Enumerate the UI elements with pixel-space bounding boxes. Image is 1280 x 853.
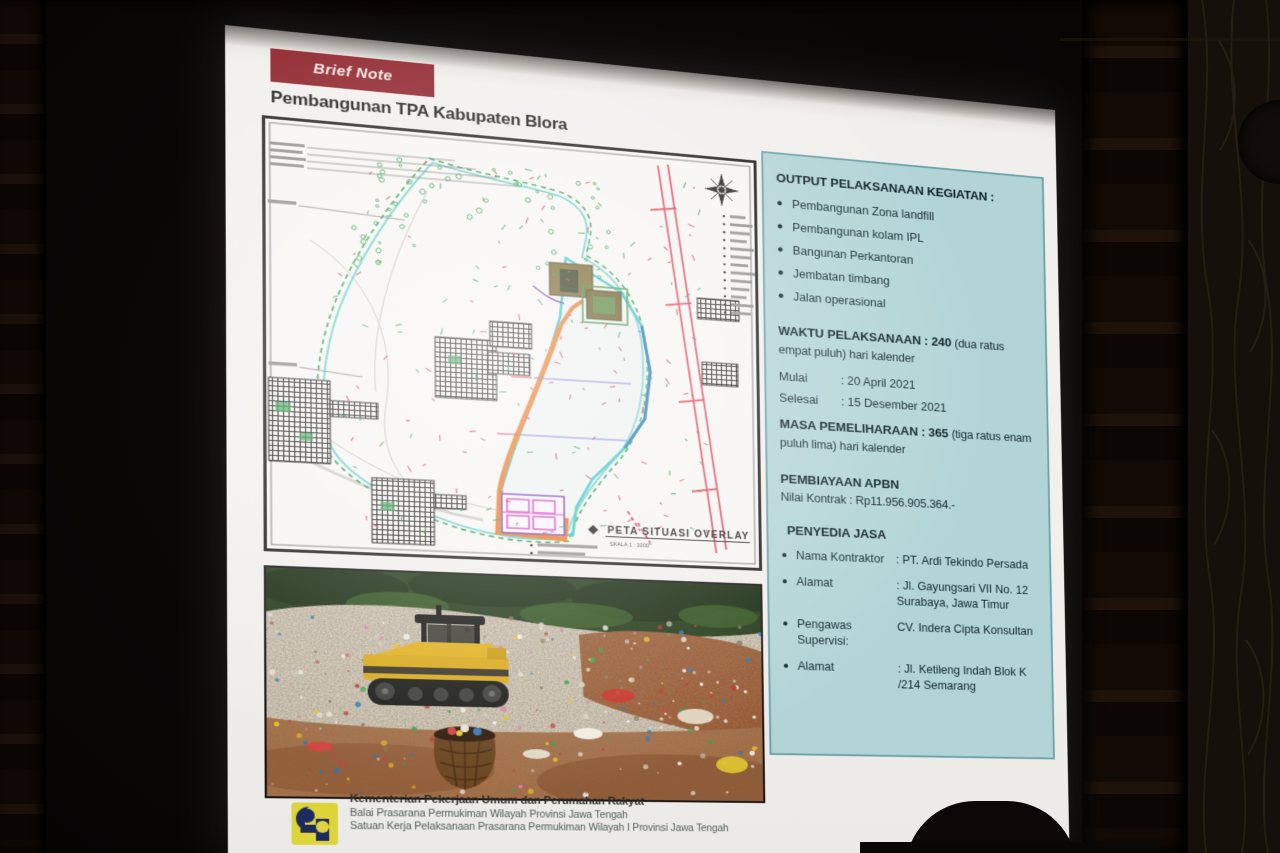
bullet-icon: ● <box>777 238 793 262</box>
footer-org-line2: Balai Prasarana Permukiman Wilayah Provi… <box>350 808 920 823</box>
footer-org-block: Kementerian Pekerjaan Umum dan Perumahan… <box>350 793 921 835</box>
waktu-pelaksanaan: WAKTU PELAKSANAAN : 240 (dua ratus empat… <box>778 322 1034 376</box>
site-plan-map: PETA SITUASI OVERLAY SKALA 1 : 1000 <box>262 115 762 571</box>
photographed-presentation-scene: Brief Note Pembangunan TPA Kabupaten Blo… <box>0 0 1280 853</box>
landfill-photo <box>264 565 766 803</box>
pembiayaan-section: PEMBIAYAAN APBN Nilai Kontrak : Rp11.956… <box>780 472 1036 516</box>
ceiling-edge <box>1060 38 1280 41</box>
audience-shoulder-silhouette <box>860 842 1160 853</box>
bullet-icon: ● <box>778 284 794 308</box>
bullet-icon: ● <box>777 215 793 239</box>
provider-row: ● Alamat: Jl. Gayungsari VII No. 12 Sura… <box>782 574 1039 615</box>
info-panel: OUTPUT PELAKSANAAN KEGIATAN : ●Pembangun… <box>761 151 1055 760</box>
ipl-ponds <box>502 494 565 535</box>
bullet-icon: ● <box>783 658 798 690</box>
brief-note-badge-label: Brief Note <box>313 61 392 84</box>
site-plan-drawing: PETA SITUASI OVERLAY SKALA 1 : 1000 <box>265 118 759 568</box>
bullet-icon: ● <box>777 261 793 285</box>
pupr-logo-icon <box>291 802 338 844</box>
bullet-icon: ● <box>782 616 797 648</box>
masa-pemeliharaan: MASA PEMELIHARAAN : 365 (tiga ratus enam… <box>779 415 1035 466</box>
bullet-icon: ● <box>776 192 792 216</box>
penyedia-heading: PENYEDIA JASA <box>787 523 1037 548</box>
provider-row: ● Nama Kontraktor: PT. Ardi Tekindo Pers… <box>781 547 1037 573</box>
footer-org-line3: Satuan Kerja Pelaksanaan Prasarana Permu… <box>350 821 920 835</box>
carved-frame-left <box>0 0 46 853</box>
provider-row: ● Pengawas Supervisi:CV. Indera Cipta Ko… <box>782 616 1039 656</box>
carved-frame-right <box>1082 0 1188 853</box>
output-list: ●Pembangunan Zona landfill ●Pembangunan … <box>776 192 1033 326</box>
brief-note-slide: Brief Note Pembangunan TPA Kabupaten Blo… <box>225 25 1070 853</box>
provider-row: ● Alamat: Jl. Ketileng Indah Blok K /214… <box>783 658 1040 696</box>
bullet-icon: ● <box>782 574 797 606</box>
bullet-icon: ● <box>781 547 796 564</box>
